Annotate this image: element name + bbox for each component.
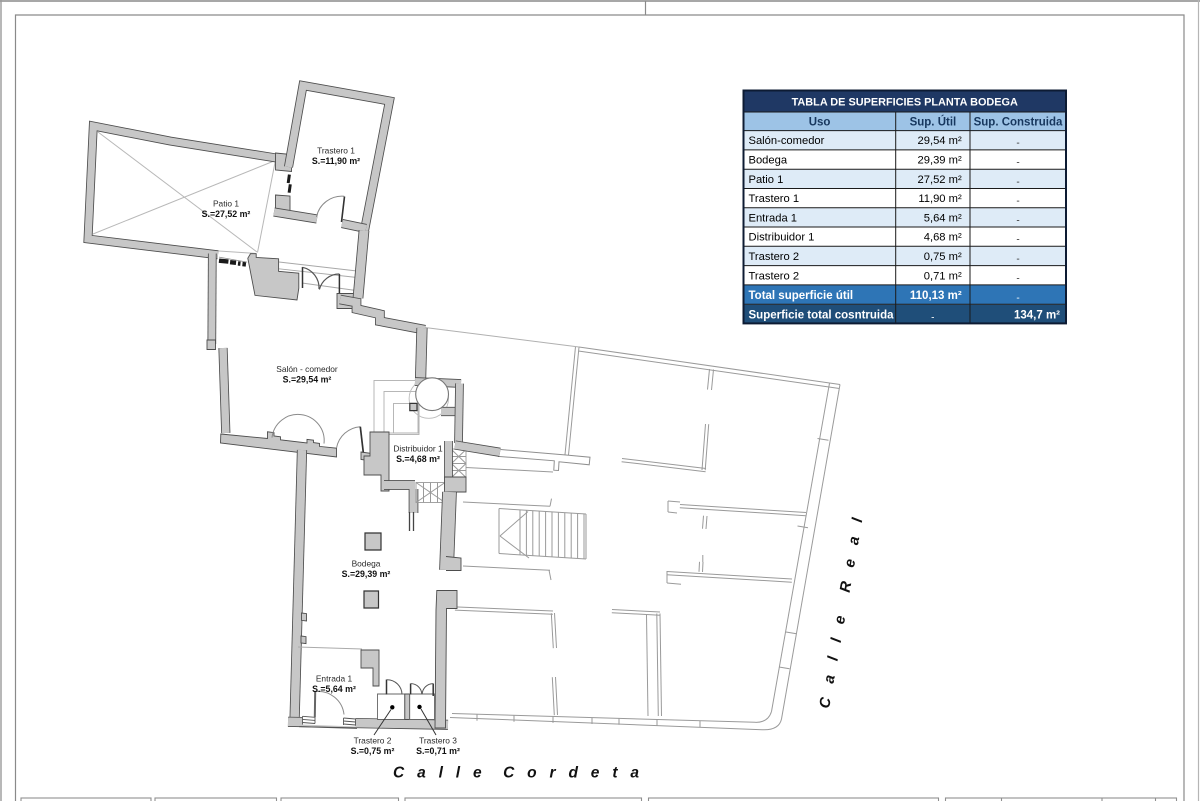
svg-text:Patio 1: Patio 1 [213,199,239,209]
svg-text:Trastero 1: Trastero 1 [749,193,800,205]
svg-text:-: - [931,312,934,323]
svg-text:29,39 m²: 29,39 m² [918,155,962,167]
svg-text:0,75 m²: 0,75 m² [924,251,962,263]
svg-text:-: - [1016,177,1019,188]
svg-text:29,54 m²: 29,54 m² [918,135,962,147]
svg-text:0,71 m²: 0,71 m² [924,270,962,282]
svg-text:11,90 m²: 11,90 m² [918,193,962,205]
svg-text:Patio 1: Patio 1 [749,174,784,186]
svg-text:27,52 m²: 27,52 m² [918,174,962,186]
svg-text:Distribuidor 1: Distribuidor 1 [393,444,443,454]
svg-text:134,7 m²: 134,7 m² [1014,309,1060,321]
svg-text:Bodega: Bodega [749,155,788,167]
svg-text:Trastero 1: Trastero 1 [317,146,355,156]
svg-text:Trastero 2: Trastero 2 [749,251,800,263]
svg-text:TABLA DE SUPERFICIES PLANTA BO: TABLA DE SUPERFICIES PLANTA BODEGA [792,96,1018,108]
svg-text:Trastero 2: Trastero 2 [749,270,800,282]
svg-text:Total superficie útil: Total superficie útil [749,290,854,302]
svg-text:-: - [1016,235,1019,246]
svg-text:S.=0,71 m²: S.=0,71 m² [416,746,460,756]
svg-text:Distribuidor 1: Distribuidor 1 [749,232,815,244]
svg-text:Salón-comedor: Salón-comedor [749,135,825,147]
svg-text:-: - [1016,254,1019,265]
svg-text:S.=11,90 m²: S.=11,90 m² [312,156,360,166]
svg-text:S.=5,64 m²: S.=5,64 m² [312,684,356,694]
svg-text:Entrada 1: Entrada 1 [316,674,353,684]
svg-text:110,13 m²: 110,13 m² [910,290,962,302]
svg-text:C a l l e R e a l: C a l l e R e a l [816,516,866,710]
svg-text:Superficie total cosntruida: Superficie total cosntruida [749,309,895,321]
svg-text:Trastero 2: Trastero 2 [354,736,392,746]
svg-text:-: - [1016,273,1019,284]
svg-text:-: - [1016,158,1019,169]
svg-text:-: - [1016,293,1019,304]
svg-text:-: - [1016,196,1019,207]
svg-text:C a l l e C o r d e t a: C a l l e C o r d e t a [393,765,639,782]
svg-text:5,64 m²: 5,64 m² [924,212,962,224]
svg-text:S.=29,54 m²: S.=29,54 m² [283,375,332,385]
svg-text:Sup. Construida: Sup. Construida [974,117,1063,129]
svg-text:Salón - comedor: Salón - comedor [276,364,338,374]
svg-text:-: - [1016,215,1019,226]
svg-text:Sup. Útil: Sup. Útil [910,116,957,129]
svg-text:S.=29,39 m²: S.=29,39 m² [342,569,391,579]
svg-text:Trastero 3: Trastero 3 [419,736,457,746]
svg-text:Bodega: Bodega [352,559,381,569]
svg-text:S.=27,52 m²: S.=27,52 m² [202,209,251,219]
svg-text:-: - [1016,138,1019,149]
svg-text:S.=0,75 m²: S.=0,75 m² [351,746,395,756]
svg-text:S.=4,68 m²: S.=4,68 m² [396,454,440,464]
svg-text:4,68 m²: 4,68 m² [924,232,962,244]
svg-text:Entrada 1: Entrada 1 [749,212,798,224]
svg-text:Uso: Uso [809,117,831,129]
